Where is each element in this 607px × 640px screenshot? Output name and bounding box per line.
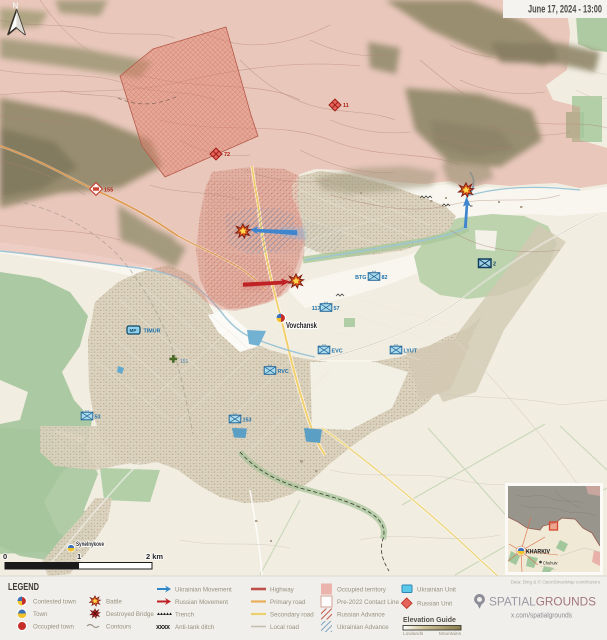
svg-text:Battle: Battle [106, 599, 122, 606]
svg-text:LYUT: LYUT [404, 348, 418, 354]
svg-text:Vovchansk: Vovchansk [286, 321, 317, 330]
svg-text:53: 53 [95, 414, 101, 420]
svg-text:Anti-tank ditch: Anti-tank ditch [175, 624, 215, 631]
svg-text:Trench: Trench [175, 612, 195, 619]
svg-text:2: 2 [493, 262, 496, 268]
svg-text:Ukrainian Advance: Ukrainian Advance [337, 624, 389, 631]
svg-text:Secondary road: Secondary road [270, 612, 314, 619]
svg-text:2 km: 2 km [146, 552, 163, 561]
svg-text:Mountains: Mountains [439, 631, 462, 637]
svg-text:N: N [13, 2, 19, 11]
svg-text:Pre-2022 Contact Line: Pre-2022 Contact Line [337, 599, 399, 606]
svg-text:xxxx: xxxx [156, 624, 170, 631]
svg-text:Lowlands: Lowlands [403, 631, 424, 637]
svg-text:Chuhuiv: Chuhuiv [543, 561, 558, 567]
svg-text:72: 72 [224, 152, 230, 158]
svg-text:153: 153 [243, 417, 252, 423]
svg-text:Occupied town: Occupied town [33, 624, 74, 631]
svg-text:Town: Town [33, 611, 48, 618]
svg-text:TIMUR: TIMUR [144, 328, 161, 334]
svg-text:1: 1 [77, 552, 81, 561]
svg-text:Contested town: Contested town [33, 599, 77, 606]
svg-text:Occupied territory: Occupied territory [337, 587, 387, 594]
svg-text:117: 117 [312, 306, 321, 312]
svg-text:Destroyed Bridge: Destroyed Bridge [106, 611, 154, 618]
svg-text:MP: MP [130, 328, 137, 333]
svg-text:Russian Unit: Russian Unit [417, 601, 452, 608]
svg-text:Russian Movement: Russian Movement [175, 599, 228, 606]
svg-text:11: 11 [343, 103, 349, 109]
svg-text:Synelnykove: Synelnykove [76, 541, 104, 548]
svg-text:x.com/spatialgrounds: x.com/spatialgrounds [511, 611, 572, 620]
svg-text:Russian Advance: Russian Advance [337, 612, 385, 619]
svg-text:0: 0 [3, 552, 7, 561]
svg-text:June 17, 2024 - 13:00: June 17, 2024 - 13:00 [528, 4, 602, 16]
svg-text:KHARKIV: KHARKIV [526, 549, 550, 556]
svg-text:Highway: Highway [270, 587, 295, 594]
svg-text:Contours: Contours [106, 624, 131, 631]
svg-text:82: 82 [382, 275, 388, 281]
svg-text:Elevation Guide: Elevation Guide [403, 617, 456, 624]
svg-text:EVC: EVC [332, 348, 343, 354]
svg-text:155: 155 [104, 188, 113, 194]
svg-text:RVC: RVC [278, 369, 289, 375]
svg-text:Ukrainian Movement: Ukrainian Movement [175, 587, 232, 594]
svg-text:57: 57 [334, 306, 340, 312]
svg-text:LEGEND: LEGEND [8, 582, 39, 593]
svg-text:Local road: Local road [270, 624, 299, 631]
svg-text:BTG: BTG [355, 275, 366, 281]
svg-text:Primary road: Primary road [270, 599, 306, 606]
svg-text:Ukrainian Unit: Ukrainian Unit [417, 587, 456, 594]
svg-text:151: 151 [180, 359, 189, 365]
svg-text:SPATIALGROUNDS: SPATIALGROUNDS [489, 595, 596, 609]
svg-text:Data: Bing & © OpenStreetMap c: Data: Bing & © OpenStreetMap contributor… [511, 579, 601, 585]
